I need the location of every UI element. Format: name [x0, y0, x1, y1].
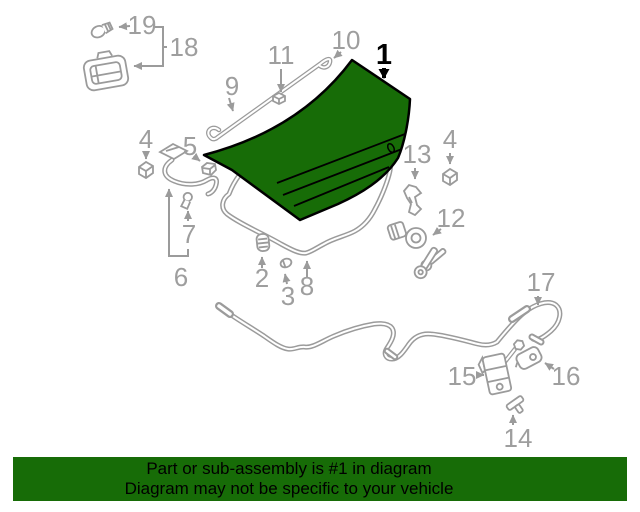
svg-text:13[interactable]: 13 — [403, 139, 432, 169]
part-clip-4-right — [443, 169, 457, 185]
svg-text:15[interactable]: 15 — [448, 361, 477, 391]
part-clip-4-left — [139, 162, 153, 178]
svg-text:1[interactable]: 1 — [376, 39, 392, 71]
callout-12[interactable]: 12 — [433, 203, 465, 235]
svg-text:14[interactable]: 14 — [504, 423, 533, 453]
svg-text:4[interactable]: 4 — [139, 124, 153, 154]
svg-text:6[interactable]: 6 — [174, 262, 188, 292]
svg-text:8[interactable]: 8 — [300, 271, 314, 301]
svg-text:3[interactable]: 3 — [281, 281, 295, 311]
svg-text:4[interactable]: 4 — [443, 124, 457, 154]
callout-10[interactable]: 10 — [332, 25, 361, 58]
callout-4-left[interactable]: 4 — [139, 124, 153, 159]
svg-text:7[interactable]: 7 — [182, 219, 196, 249]
parts-diagram-canvas: 19 18 9 11 10 1 4 5 — [0, 0, 640, 512]
info-banner: Part or sub-assembly is #1 in diagram Di… — [13, 457, 627, 501]
banner-line-1: Part or sub-assembly is #1 in diagram — [13, 459, 565, 479]
svg-text:19[interactable]: 19 — [128, 10, 157, 40]
svg-text:9[interactable]: 9 — [225, 71, 239, 101]
svg-text:16[interactable]: 16 — [552, 361, 581, 391]
svg-text:10[interactable]: 10 — [332, 25, 361, 55]
banner-line-2: Diagram may not be specific to your vehi… — [13, 479, 565, 499]
svg-text:12[interactable]: 12 — [437, 203, 466, 233]
svg-text:11[interactable]: 11 — [268, 40, 295, 70]
part-clip-11 — [273, 93, 285, 104]
part-clip-5 — [202, 163, 216, 175]
svg-text:17[interactable]: 17 — [527, 267, 556, 297]
callout-2[interactable]: 2 — [255, 257, 269, 293]
svg-text:18[interactable]: 18 — [170, 32, 199, 62]
part-bumper-2 — [256, 233, 270, 251]
svg-text:5[interactable]: 5 — [183, 131, 197, 161]
svg-text:2[interactable]: 2 — [255, 263, 269, 293]
